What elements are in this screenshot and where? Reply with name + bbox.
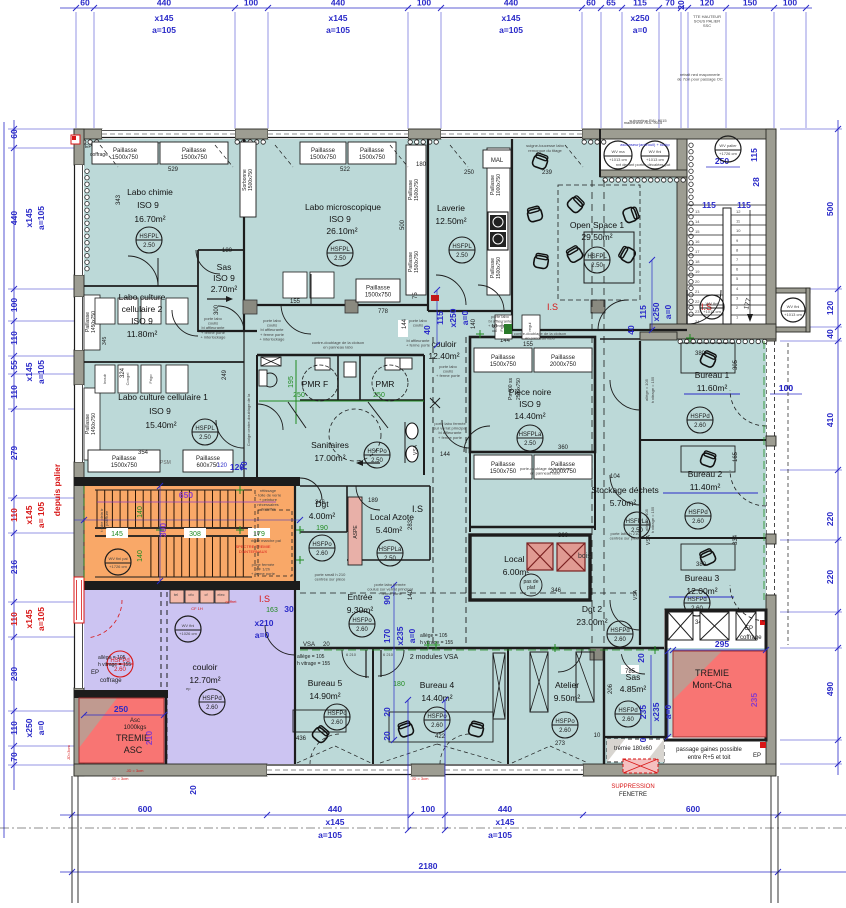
svg-text:26.10m²: 26.10m² xyxy=(326,226,357,236)
svg-text:360: 360 xyxy=(558,445,569,451)
svg-text:308: 308 xyxy=(189,531,201,538)
svg-text:+ ferme porte: + ferme porte xyxy=(406,343,431,348)
svg-text:+ interlockage: + interlockage xyxy=(259,336,285,341)
svg-text:1000kgs: 1000kgs xyxy=(124,725,147,731)
svg-text:Laverie: Laverie xyxy=(437,203,465,213)
svg-text:+1726 cm: +1726 cm xyxy=(109,564,127,569)
svg-text:15.40m²: 15.40m² xyxy=(145,420,176,430)
svg-text:VSA: VSA xyxy=(303,642,315,648)
svg-text:334: 334 xyxy=(733,534,739,545)
svg-text:16.70m²: 16.70m² xyxy=(134,214,165,224)
svg-text:Ps 400 ss: Ps 400 ss xyxy=(508,378,514,400)
svg-text:HSFPd: HSFPd xyxy=(690,414,709,420)
svg-text:189: 189 xyxy=(368,498,379,504)
svg-text:115: 115 xyxy=(633,0,647,8)
svg-text:40: 40 xyxy=(825,329,835,339)
svg-text:Stockage déchets: Stockage déchets xyxy=(591,485,659,495)
svg-text:+ interlockage: + interlockage xyxy=(200,334,226,339)
svg-text:WV fini: WV fini xyxy=(787,304,800,309)
svg-text:ISO 9: ISO 9 xyxy=(519,399,541,409)
svg-text:coulis: coulis xyxy=(413,323,423,328)
svg-text:16: 16 xyxy=(695,239,700,244)
svg-text:235: 235 xyxy=(638,705,648,719)
svg-text:440: 440 xyxy=(504,0,518,8)
svg-text:Labo chimie: Labo chimie xyxy=(127,187,173,197)
svg-text:360: 360 xyxy=(558,533,569,539)
svg-text:FENETRE: FENETRE xyxy=(619,792,647,798)
svg-text:250: 250 xyxy=(114,704,128,714)
svg-text:100: 100 xyxy=(783,0,797,8)
svg-text:Labo culture: Labo culture xyxy=(119,292,166,302)
svg-text:1500x750: 1500x750 xyxy=(414,179,420,201)
svg-text:+1726 cm: +1726 cm xyxy=(719,151,737,156)
svg-text:23: 23 xyxy=(695,309,700,314)
svg-text:324: 324 xyxy=(120,367,126,378)
svg-text:+ ferme porte: + ferme porte xyxy=(438,435,463,440)
svg-text:436: 436 xyxy=(296,736,307,742)
svg-text:2.50: 2.50 xyxy=(334,256,346,262)
svg-text:15: 15 xyxy=(695,229,700,234)
svg-text:1500x750: 1500x750 xyxy=(248,169,254,191)
svg-text:23.00m²: 23.00m² xyxy=(576,617,607,627)
svg-text:HSFPd: HSFPd xyxy=(688,510,707,516)
svg-text:JD=3cm: JD=3cm xyxy=(66,745,71,760)
svg-text:230: 230 xyxy=(9,667,19,681)
svg-text:subvertine RAL 9015: subvertine RAL 9015 xyxy=(629,118,667,123)
svg-text:WV fini: WV fini xyxy=(649,149,662,154)
svg-text:a=105: a=105 xyxy=(36,206,46,230)
svg-text:1450x750: 1450x750 xyxy=(91,413,97,435)
svg-text:21: 21 xyxy=(695,289,700,294)
svg-text:2.50: 2.50 xyxy=(199,435,211,441)
svg-text:a=0: a=0 xyxy=(255,630,270,640)
svg-text:20: 20 xyxy=(676,0,686,10)
svg-text:440: 440 xyxy=(498,804,512,814)
svg-text:110: 110 xyxy=(9,331,19,345)
svg-text:20: 20 xyxy=(382,707,392,717)
svg-text:Paillasse: Paillasse xyxy=(196,456,221,462)
svg-text:Frigo: Frigo xyxy=(148,374,153,384)
svg-text:TREMIE: TREMIE xyxy=(695,668,729,678)
svg-text:1500x750: 1500x750 xyxy=(112,155,139,161)
svg-text:Bureau 3: Bureau 3 xyxy=(685,573,720,583)
svg-text:ISO 9: ISO 9 xyxy=(329,214,351,224)
svg-text:Labo microscopique: Labo microscopique xyxy=(305,202,381,212)
svg-text:250: 250 xyxy=(464,170,475,176)
svg-text:coffret: coffret xyxy=(225,599,237,604)
svg-text:2.60: 2.60 xyxy=(431,723,443,729)
svg-text:a=0: a=0 xyxy=(663,305,673,320)
svg-text:x145: x145 xyxy=(329,13,348,23)
svg-text:Paillasse: Paillasse xyxy=(311,148,336,154)
svg-text:+ ferme porte: + ferme porte xyxy=(436,373,461,378)
svg-text:bois: bois xyxy=(578,553,591,560)
svg-text:17.00m²: 17.00m² xyxy=(314,453,345,463)
svg-text:x250: x250 xyxy=(24,718,34,737)
svg-text:HSFPL: HSFPL xyxy=(587,254,607,260)
svg-text:1500x750: 1500x750 xyxy=(359,155,386,161)
svg-text:Labo culture cellulaire 1: Labo culture cellulaire 1 xyxy=(118,392,208,402)
svg-text:Bureau 2: Bureau 2 xyxy=(688,469,723,479)
svg-text:x145: x145 xyxy=(496,817,515,827)
svg-text:a=0: a=0 xyxy=(36,721,46,736)
svg-text:cellulaire 2: cellulaire 2 xyxy=(122,304,163,314)
svg-text:2.60: 2.60 xyxy=(206,705,218,711)
svg-text:1500x750: 1500x750 xyxy=(490,362,517,368)
svg-text:Entrée: Entrée xyxy=(347,592,372,602)
svg-text:115: 115 xyxy=(749,148,759,162)
svg-text:422: 422 xyxy=(435,734,446,740)
svg-text:650: 650 xyxy=(179,490,193,500)
svg-text:110: 110 xyxy=(9,385,19,399)
svg-text:20: 20 xyxy=(382,731,392,741)
svg-text:2.50: 2.50 xyxy=(384,556,396,562)
svg-text:65: 65 xyxy=(606,0,616,8)
svg-text:MAL: MAL xyxy=(491,158,504,164)
svg-text:HSFPd: HSFPd xyxy=(618,708,637,714)
svg-text:170: 170 xyxy=(382,629,392,643)
svg-text:144: 144 xyxy=(440,452,451,458)
svg-text:778: 778 xyxy=(378,309,389,315)
svg-text:2.60: 2.60 xyxy=(692,519,704,525)
svg-text:x210: x210 xyxy=(255,618,274,628)
svg-text:120: 120 xyxy=(217,463,228,469)
svg-text:tel: tel xyxy=(174,592,178,597)
svg-text:h vitrage = 155: h vitrage = 155 xyxy=(98,662,131,668)
svg-text:SSC: SSC xyxy=(703,23,711,28)
svg-text:allège = 105: allège = 105 xyxy=(420,633,448,639)
svg-text:110: 110 xyxy=(9,721,19,735)
svg-text:a=105: a=105 xyxy=(152,25,176,35)
svg-text:coffrage: coffrage xyxy=(100,678,122,684)
svg-text:Paillasse: Paillasse xyxy=(182,148,207,154)
svg-text:allège = 105: allège = 105 xyxy=(98,655,126,661)
svg-text:Paillasse: Paillasse xyxy=(551,355,576,361)
svg-text:22: 22 xyxy=(695,299,700,304)
svg-text:239: 239 xyxy=(542,170,553,176)
svg-text:x145: x145 xyxy=(326,817,345,827)
svg-text:140: 140 xyxy=(137,550,144,562)
svg-text:Paillasse: Paillasse xyxy=(491,462,516,468)
svg-text:1500x750: 1500x750 xyxy=(365,293,392,299)
svg-text:ep: ep xyxy=(186,686,191,691)
svg-text:couloir: couloir xyxy=(431,339,456,349)
svg-text:Dgt 2: Dgt 2 xyxy=(582,604,603,614)
svg-text:I.S: I.S xyxy=(547,302,558,312)
svg-text:D'ANTERNAUX: D'ANTERNAUX xyxy=(239,549,268,554)
svg-text:de 7cm pour passage OC: de 7cm pour passage OC xyxy=(677,77,723,82)
svg-text:60: 60 xyxy=(9,129,19,139)
svg-text:a=105: a=105 xyxy=(36,607,46,631)
svg-text:4.00m²: 4.00m² xyxy=(309,511,336,521)
svg-text:centrée sur pièce: centrée sur pièce xyxy=(610,536,641,541)
svg-text:nvt devant portes décalées put: nvt devant portes décalées put xyxy=(616,162,671,167)
svg-text:11.40m²: 11.40m² xyxy=(690,482,721,492)
svg-text:I.S: I.S xyxy=(259,594,270,604)
svg-text:a=0: a=0 xyxy=(663,705,673,720)
svg-text:Inoub: Inoub xyxy=(102,373,107,384)
svg-text:Open Space 1: Open Space 1 xyxy=(570,220,625,230)
svg-text:250: 250 xyxy=(293,392,305,399)
svg-text:29.50m²: 29.50m² xyxy=(581,232,612,242)
svg-text:2.50: 2.50 xyxy=(524,441,536,447)
svg-text:522: 522 xyxy=(340,167,351,173)
svg-text:+1013 cm: +1013 cm xyxy=(703,309,721,314)
svg-text:490: 490 xyxy=(825,682,835,696)
svg-text:5.40m²: 5.40m² xyxy=(376,525,403,535)
svg-text:VSA: VSA xyxy=(413,444,419,455)
svg-text:144: 144 xyxy=(402,318,408,329)
svg-text:Bureau 5: Bureau 5 xyxy=(308,678,343,688)
svg-text:2.60: 2.60 xyxy=(331,720,343,726)
svg-text:elec: elec xyxy=(217,592,224,597)
svg-text:20: 20 xyxy=(695,279,700,284)
svg-text:500: 500 xyxy=(825,202,835,216)
svg-text:desinfini: desinfini xyxy=(261,506,276,511)
svg-text:Mont-Cha: Mont-Cha xyxy=(692,680,732,690)
svg-text:14.90m²: 14.90m² xyxy=(309,691,340,701)
svg-text:354: 354 xyxy=(138,450,149,456)
svg-text:ISO 9: ISO 9 xyxy=(213,273,235,283)
svg-text:SUPPRESSION: SUPPRESSION xyxy=(611,784,654,790)
svg-text:a=0: a=0 xyxy=(460,311,470,326)
svg-text:HSFPLa: HSFPLa xyxy=(379,547,402,553)
svg-text:115: 115 xyxy=(702,200,716,210)
svg-text:passage gaines possible: passage gaines possible xyxy=(676,747,742,753)
svg-text:a=0: a=0 xyxy=(633,25,648,35)
svg-text:28: 28 xyxy=(751,177,761,187)
svg-text:x250: x250 xyxy=(631,13,650,23)
svg-text:2.60: 2.60 xyxy=(622,717,634,723)
svg-text:2.50: 2.50 xyxy=(456,253,468,259)
svg-text:1500x750: 1500x750 xyxy=(414,251,420,273)
svg-text:x145: x145 xyxy=(155,13,174,23)
svg-text:h vitrage = 155: h vitrage = 155 xyxy=(650,506,655,533)
svg-text:a=105: a=105 xyxy=(318,830,342,840)
svg-text:I.S: I.S xyxy=(492,323,499,332)
svg-text:Bureau 1: Bureau 1 xyxy=(695,370,730,380)
svg-text:220: 220 xyxy=(825,512,835,526)
svg-text:1500x750: 1500x750 xyxy=(111,463,138,469)
svg-text:210: 210 xyxy=(144,731,154,745)
svg-text:305: 305 xyxy=(733,359,739,370)
svg-text:PSM: PSM xyxy=(160,460,171,466)
svg-text:EP: EP xyxy=(85,144,92,150)
svg-text:2.60: 2.60 xyxy=(559,728,571,734)
svg-text:WV fini: WV fini xyxy=(706,301,719,306)
svg-text:centrée sur pièce: centrée sur pièce xyxy=(315,577,346,582)
svg-text:HSFPo: HSFPo xyxy=(367,449,387,455)
svg-text:120: 120 xyxy=(700,0,714,8)
svg-text:4.85m²: 4.85m² xyxy=(620,684,647,694)
svg-text:2000x750: 2000x750 xyxy=(550,362,577,368)
svg-text:HSFPd: HSFPd xyxy=(610,628,629,634)
svg-text:220: 220 xyxy=(825,570,835,584)
svg-text:2 modules VSA: 2 modules VSA xyxy=(410,654,459,661)
svg-text:HSFPo: HSFPo xyxy=(352,618,372,624)
svg-text:1500x750: 1500x750 xyxy=(496,257,502,279)
svg-text:60: 60 xyxy=(586,0,596,8)
svg-text:HSFPo: HSFPo xyxy=(555,719,575,725)
svg-text:I.S: I.S xyxy=(412,504,423,514)
svg-text:235: 235 xyxy=(749,693,759,707)
svg-text:0: 0 xyxy=(638,737,648,742)
svg-text:x235: x235 xyxy=(651,702,661,721)
svg-text:HSFPL: HSFPL xyxy=(195,426,215,432)
svg-text:180: 180 xyxy=(393,681,405,688)
svg-text:14.40m²: 14.40m² xyxy=(421,693,452,703)
svg-text:180: 180 xyxy=(416,162,427,168)
svg-text:100: 100 xyxy=(421,804,435,814)
svg-text:110: 110 xyxy=(9,612,19,626)
svg-text:2.50: 2.50 xyxy=(591,263,603,269)
svg-text:a=105: a=105 xyxy=(488,830,512,840)
svg-text:HSFPL: HSFPL xyxy=(452,244,472,250)
svg-text:WV fini pal: WV fini pal xyxy=(108,556,127,561)
svg-text:6 210: 6 210 xyxy=(346,652,357,657)
svg-text:2.60: 2.60 xyxy=(694,423,706,429)
svg-text:20: 20 xyxy=(188,785,198,795)
svg-text:14: 14 xyxy=(695,219,700,224)
svg-text:155: 155 xyxy=(523,342,534,348)
svg-text:249: 249 xyxy=(222,369,228,380)
svg-text:ISO 9: ISO 9 xyxy=(131,316,153,326)
svg-text:75: 75 xyxy=(413,292,419,299)
svg-text:a=105: a=105 xyxy=(499,25,523,35)
svg-text:2.60: 2.60 xyxy=(316,551,328,557)
svg-text:346: 346 xyxy=(315,500,326,506)
svg-text:HSFPo: HSFPo xyxy=(427,714,447,720)
svg-text:410: 410 xyxy=(825,413,835,427)
svg-text:HSFPo: HSFPo xyxy=(327,711,347,717)
svg-text:440: 440 xyxy=(331,0,345,8)
svg-text:allège = 105: allège = 105 xyxy=(297,654,325,660)
svg-text:+1013 cm: +1013 cm xyxy=(784,312,802,317)
svg-text:entre R+5 et toit: entre R+5 et toit xyxy=(688,755,731,761)
svg-text:VSA: VSA xyxy=(646,534,652,545)
svg-text:+ ferme porte: + ferme porte xyxy=(378,591,403,596)
svg-text:600: 600 xyxy=(686,804,700,814)
svg-text:11.60m²: 11.60m² xyxy=(697,383,728,393)
svg-text:140: 140 xyxy=(137,506,144,518)
svg-text:depuis palier: depuis palier xyxy=(52,463,62,516)
svg-text:10: 10 xyxy=(736,228,741,233)
svg-text:riude marche pal: riude marche pal xyxy=(251,538,281,543)
svg-text:100: 100 xyxy=(244,0,258,8)
svg-text:90: 90 xyxy=(382,595,392,605)
svg-text:155: 155 xyxy=(290,299,301,305)
svg-text:+1026 cm: +1026 cm xyxy=(179,631,197,636)
svg-text:x235: x235 xyxy=(395,626,405,645)
svg-text:1500x750: 1500x750 xyxy=(490,469,517,475)
svg-text:en panneau labo: en panneau labo xyxy=(530,471,561,476)
svg-text:6 210: 6 210 xyxy=(383,652,394,657)
svg-text:600: 600 xyxy=(138,804,152,814)
svg-text:HSFPLa: HSFPLa xyxy=(519,432,542,438)
svg-text:Bureau 4: Bureau 4 xyxy=(420,680,455,690)
svg-text:13: 13 xyxy=(695,209,700,214)
svg-text:h vitrage = 155: h vitrage = 155 xyxy=(650,376,655,403)
svg-text:remorque du titage: remorque du titage xyxy=(528,148,562,153)
svg-text:100: 100 xyxy=(9,298,19,312)
svg-text:coffrage: coffrage xyxy=(740,635,762,641)
svg-text:WV palier: WV palier xyxy=(719,143,737,148)
svg-text:WV fini: WV fini xyxy=(182,623,195,628)
svg-text:allège = 105: allège = 105 xyxy=(644,378,649,401)
svg-text:190: 190 xyxy=(316,525,328,532)
svg-text:trémie 180x60: trémie 180x60 xyxy=(614,746,653,752)
svg-text:70: 70 xyxy=(239,461,249,471)
svg-text:HSFPd: HSFPd xyxy=(202,696,221,702)
svg-text:17: 17 xyxy=(695,249,700,254)
svg-text:ISO 9: ISO 9 xyxy=(149,406,171,416)
svg-text:Sanitaires: Sanitaires xyxy=(311,440,349,450)
svg-text:1000x750: 1000x750 xyxy=(496,174,502,196)
svg-text:180: 180 xyxy=(222,248,233,254)
svg-text:2.70m²: 2.70m² xyxy=(211,284,238,294)
svg-text:CF 1H: CF 1H xyxy=(191,606,203,611)
svg-text:163: 163 xyxy=(266,607,278,614)
svg-text:14.40m²: 14.40m² xyxy=(514,411,545,421)
svg-text:345: 345 xyxy=(102,336,108,345)
svg-text:500: 500 xyxy=(400,219,406,230)
svg-text:283: 283 xyxy=(408,519,414,530)
svg-text:JD = 3cm: JD = 3cm xyxy=(111,776,129,781)
svg-text:195: 195 xyxy=(288,376,295,388)
svg-text:Paillasse: Paillasse xyxy=(366,286,391,292)
svg-text:206: 206 xyxy=(608,683,614,694)
svg-text:ASC: ASC xyxy=(124,745,143,755)
svg-text:2.60: 2.60 xyxy=(356,627,368,633)
svg-text:x250: x250 xyxy=(448,308,458,327)
svg-text:18: 18 xyxy=(695,259,700,264)
svg-text:11.80m²: 11.80m² xyxy=(127,329,158,339)
svg-text:12.50m²: 12.50m² xyxy=(435,216,466,226)
svg-text:Asc: Asc xyxy=(130,718,140,724)
svg-text:a=105: a=105 xyxy=(36,360,46,384)
svg-text:PMR F: PMR F xyxy=(302,379,328,389)
svg-text:EP: EP xyxy=(91,670,99,676)
svg-text:60: 60 xyxy=(80,0,90,8)
svg-text:a=105: a=105 xyxy=(326,25,350,35)
svg-text:Paillasse: Paillasse xyxy=(113,148,138,154)
svg-text:x145: x145 xyxy=(24,208,34,227)
svg-text:12.70m²: 12.70m² xyxy=(189,675,220,685)
svg-text:140: 140 xyxy=(408,589,414,600)
svg-text:1500x750: 1500x750 xyxy=(181,155,208,161)
svg-text:140: 140 xyxy=(471,318,477,329)
svg-text:Paillasse: Paillasse xyxy=(360,148,385,154)
svg-text:h vitrage = 155: h vitrage = 155 xyxy=(297,661,330,667)
svg-text:JD = 3cm: JD = 3cm xyxy=(411,776,429,781)
svg-text:PMR: PMR xyxy=(376,379,395,389)
svg-text:EP: EP xyxy=(753,753,761,759)
svg-text:115: 115 xyxy=(638,305,648,319)
svg-text:100: 100 xyxy=(779,383,793,393)
svg-text:en panneau labo: en panneau labo xyxy=(525,336,556,341)
svg-text:HSFPo: HSFPo xyxy=(312,542,332,548)
svg-text:allège = 105: allège = 105 xyxy=(644,508,649,531)
svg-text:115: 115 xyxy=(737,200,751,210)
svg-text:2.60: 2.60 xyxy=(614,637,626,643)
svg-text:100: 100 xyxy=(417,0,431,8)
svg-text:x145: x145 xyxy=(24,362,34,381)
svg-text:ascenseur(antirouil) + tdakp: ascenseur(antirouil) + tdakp xyxy=(620,142,670,147)
svg-text:20: 20 xyxy=(636,653,646,663)
svg-text:70: 70 xyxy=(9,752,19,762)
svg-text:Coolge centre-doublage de la: Coolge centre-doublage de la xyxy=(246,393,251,446)
svg-text:plaf: plaf xyxy=(527,585,536,591)
